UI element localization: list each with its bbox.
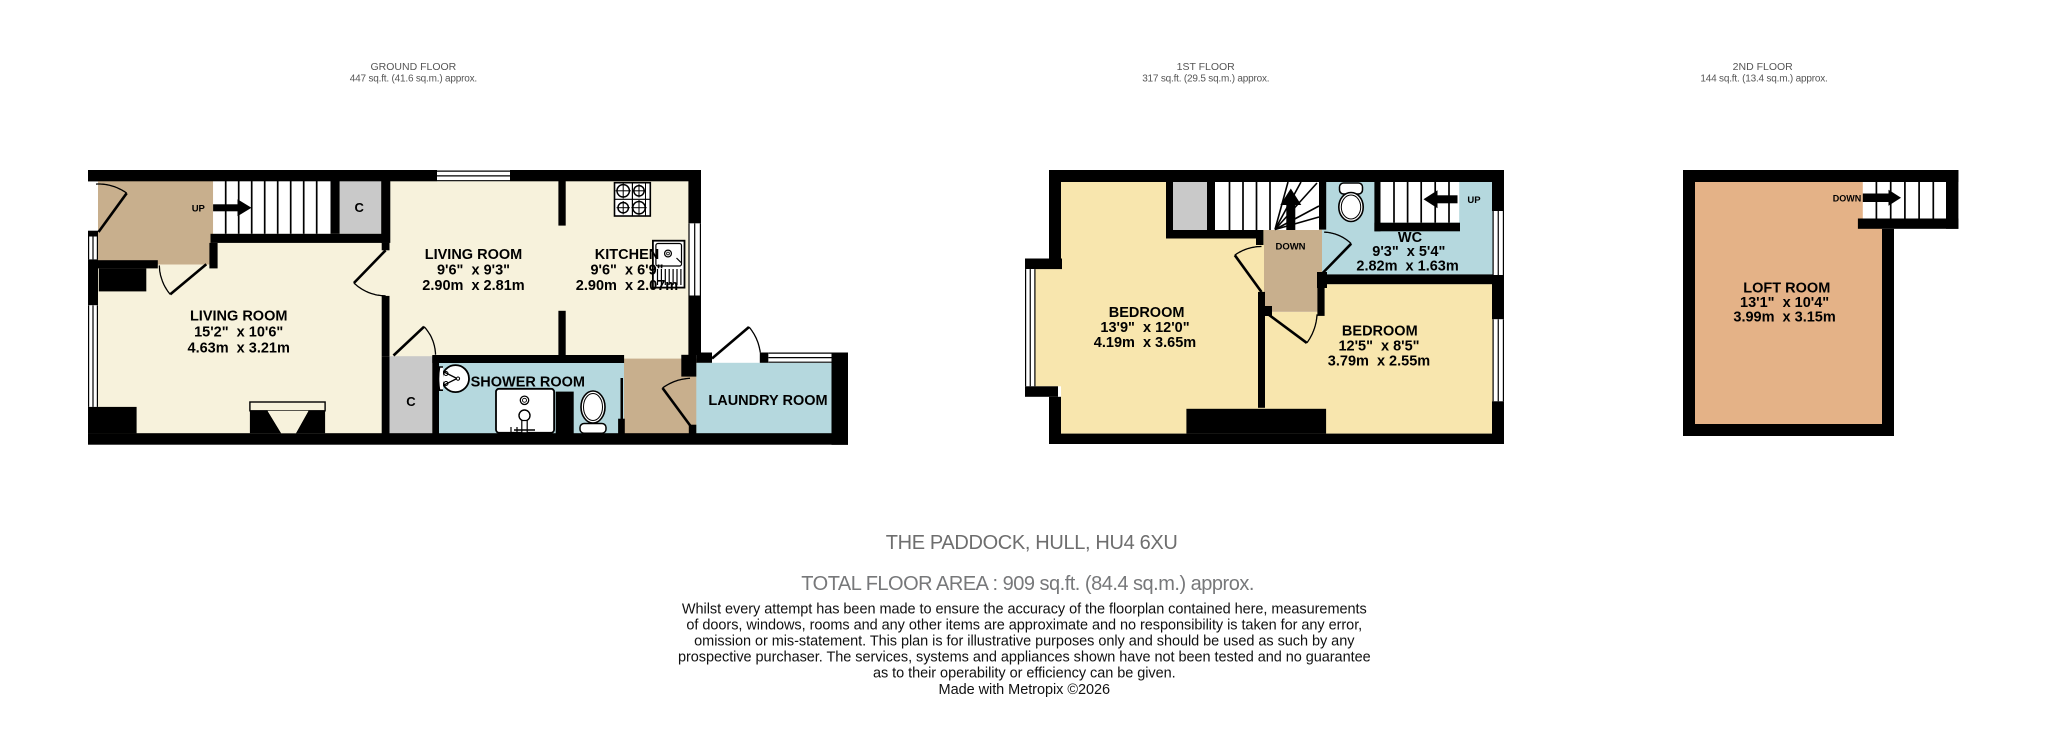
svg-text:9'6" x 9'3": 9'6" x 9'3" [437,263,510,279]
svg-text:13'9" x 12'0": 13'9" x 12'0" [1100,320,1189,336]
svg-text:DOWN: DOWN [1833,194,1862,204]
svg-text:KITCHEN: KITCHEN [595,247,659,263]
svg-text:3.99m x 3.15m: 3.99m x 3.15m [1733,310,1835,326]
svg-text:UP: UP [192,204,206,215]
svg-text:LIVING ROOM: LIVING ROOM [190,309,287,325]
svg-text:omission or mis-statement. Thi: omission or mis-statement. This plan is … [694,634,1355,650]
svg-text:12'5" x 8'5": 12'5" x 8'5" [1338,339,1419,355]
svg-text:THE PADDOCK, HULL, HU4 6XU: THE PADDOCK, HULL, HU4 6XU [886,532,1178,554]
svg-text:C: C [355,200,365,215]
svg-text:SHOWER ROOM: SHOWER ROOM [471,374,585,390]
svg-text:15'2" x 10'6": 15'2" x 10'6" [194,325,283,341]
svg-text:3.79m x 2.55m: 3.79m x 2.55m [1328,354,1430,370]
svg-text:TOTAL FLOOR AREA : 909 sq.ft.: TOTAL FLOOR AREA : 909 sq.ft. (84.4 sq.m… [801,573,1254,595]
svg-text:prospective purchaser. The ser: prospective purchaser. The services, sys… [678,650,1371,666]
svg-text:2.82m x 1.63m: 2.82m x 1.63m [1356,259,1458,275]
svg-text:447 sq.ft. (41.6 sq.m.) approx: 447 sq.ft. (41.6 sq.m.) approx. [350,74,477,85]
svg-text:317 sq.ft. (29.5 sq.m.) approx: 317 sq.ft. (29.5 sq.m.) approx. [1142,74,1269,85]
svg-text:LIVING ROOM: LIVING ROOM [425,247,522,263]
svg-text:UP: UP [1467,195,1481,206]
svg-text:DOWN: DOWN [1275,242,1305,253]
svg-text:C: C [406,394,416,409]
svg-text:GROUND FLOOR: GROUND FLOOR [371,61,457,73]
svg-text:2.90m x 2.81m: 2.90m x 2.81m [422,278,524,294]
svg-text:of doors, windows, rooms and a: of doors, windows, rooms and any other i… [686,618,1362,634]
svg-text:LAUNDRY ROOM: LAUNDRY ROOM [708,393,827,409]
svg-text:4.63m x 3.21m: 4.63m x 3.21m [188,341,290,357]
svg-text:BEDROOM: BEDROOM [1342,324,1418,340]
svg-text:BEDROOM: BEDROOM [1109,305,1185,321]
svg-text:9'6" x 6'9": 9'6" x 6'9" [590,263,663,279]
svg-text:2.90m x 2.07m: 2.90m x 2.07m [576,278,678,294]
svg-text:144 sq.ft. (13.4 sq.m.) approx: 144 sq.ft. (13.4 sq.m.) approx. [1700,74,1827,85]
svg-text:Made with Metropix ©2026: Made with Metropix ©2026 [939,682,1110,698]
svg-text:as to their operability or eff: as to their operability or efficiency ca… [873,666,1176,682]
svg-text:4.19m x 3.65m: 4.19m x 3.65m [1094,335,1196,351]
svg-text:1ST FLOOR: 1ST FLOOR [1177,61,1236,73]
svg-text:2ND FLOOR: 2ND FLOOR [1733,61,1794,73]
svg-text:Whilst every attempt has been: Whilst every attempt has been made to en… [682,602,1367,618]
